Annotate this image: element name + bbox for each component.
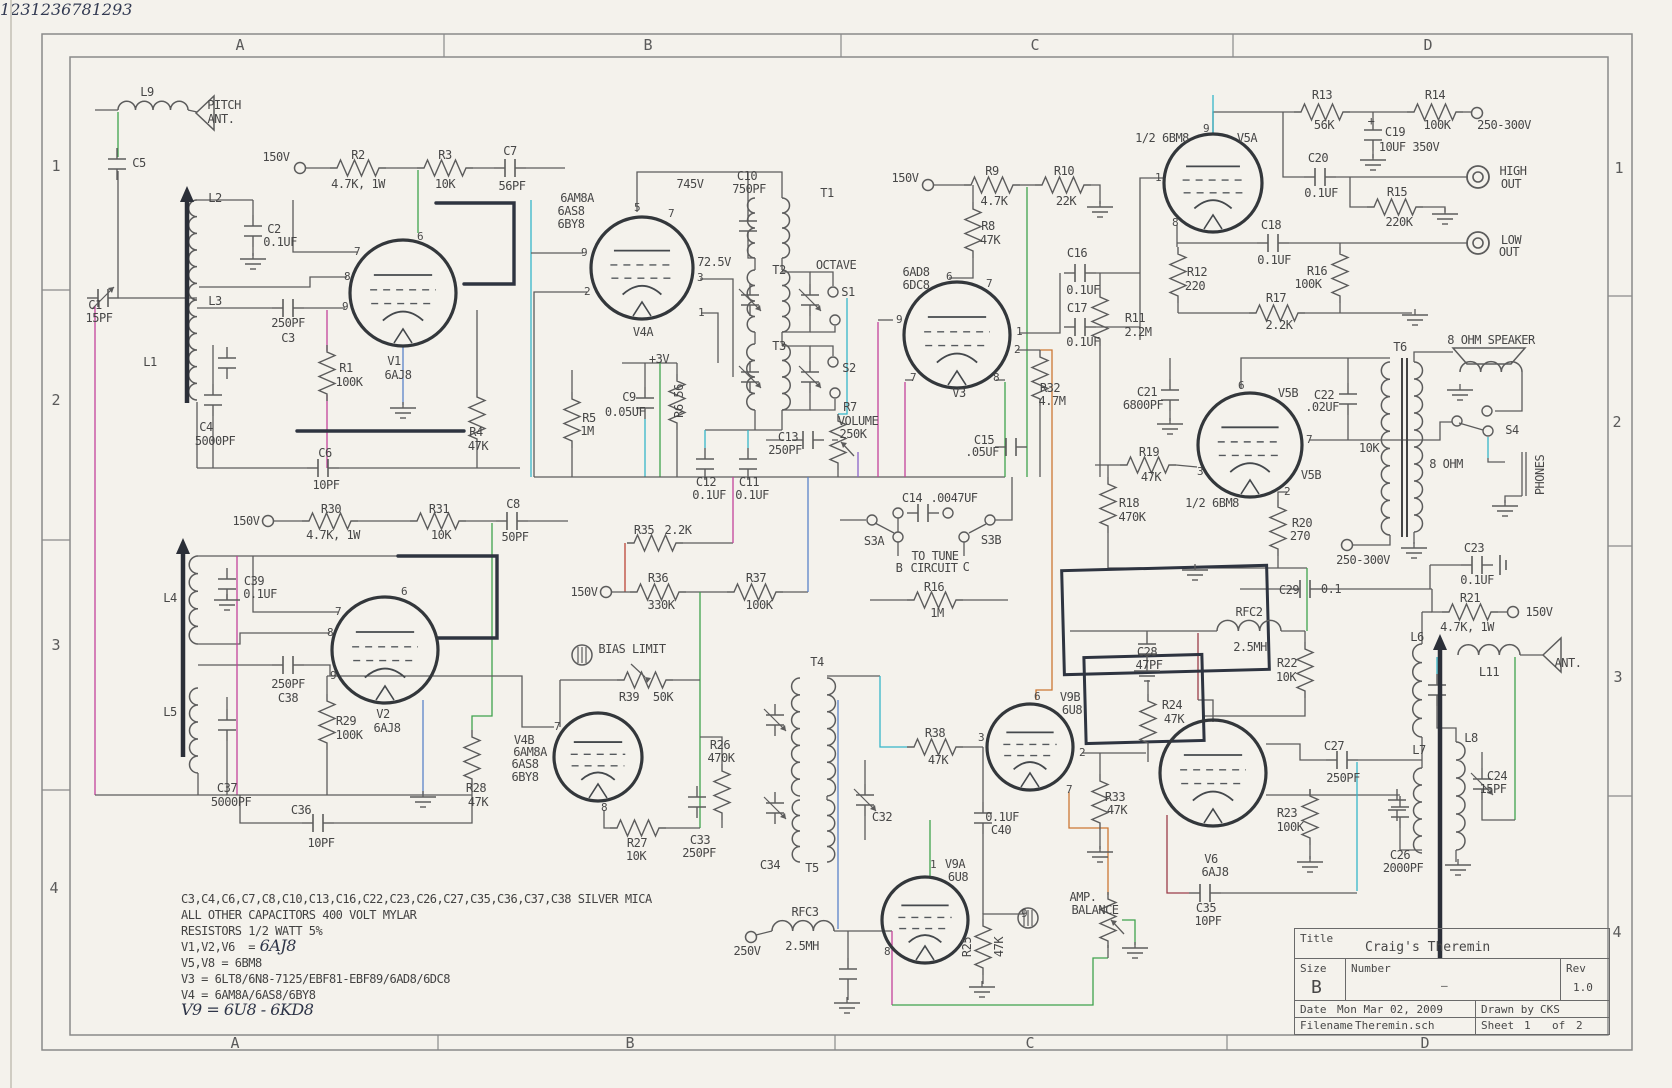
wire [1400, 828, 1422, 850]
inductor-symbol [190, 688, 199, 773]
resistor-symbol [319, 694, 335, 750]
component-label: 4.7K, 1W [331, 178, 385, 190]
component-label: 0.1UF [1257, 254, 1291, 266]
grid-ref-bottom-D: D [1420, 1034, 1429, 1052]
component-label: T4 [810, 656, 823, 668]
wire [1505, 496, 1522, 503]
component-label: R19 [1139, 446, 1159, 458]
wire [782, 272, 810, 284]
pot-wiper-arrow [631, 664, 645, 677]
size-label: Size [1300, 962, 1327, 975]
component-label: 220 [1185, 280, 1205, 292]
tube-pin-number: 2 [1284, 486, 1290, 498]
capacitor-symbol [244, 215, 262, 247]
component-label: C29 [1279, 584, 1299, 596]
component-label: R5 [582, 412, 595, 424]
capacitor-symbol [1461, 556, 1493, 574]
component-label: C7 [503, 145, 516, 157]
component-label: R30 [321, 503, 341, 515]
tube-cathode [1194, 200, 1231, 208]
component-label: 4.7M [1039, 395, 1066, 407]
component-label: 47K [980, 234, 1000, 246]
resistor-symbol [1367, 199, 1423, 215]
number-label: Number [1351, 962, 1391, 975]
wire [700, 279, 733, 377]
component-label: C23 [1464, 542, 1484, 554]
component-label: L11 [1479, 666, 1499, 678]
resistor-symbol [564, 392, 580, 448]
component-label: BALANCE [1071, 904, 1118, 916]
grid-ref-left-3: 3 [51, 636, 60, 654]
component-label-rotated: 47K [993, 937, 1005, 957]
component-label: 47K [468, 440, 488, 452]
tube-heater [394, 329, 412, 343]
component-label: CIRCUIT [910, 562, 957, 574]
tube-pin-number: 1 [1016, 326, 1022, 338]
tube-pin-number: 8 [884, 946, 890, 958]
component-label: 6AJ8 [1202, 866, 1229, 878]
component-label: C20 [1308, 152, 1328, 164]
wire [334, 795, 472, 823]
wire [1414, 422, 1452, 440]
component-label: 2.5MH [1233, 641, 1267, 653]
component-label: 47K [1141, 471, 1161, 483]
component-label: C8 [506, 498, 519, 510]
sheet-label: Sheet [1481, 1019, 1514, 1032]
size-cell: Size B [1295, 959, 1346, 1000]
component-label: 1/2 6BM8 [1185, 497, 1239, 509]
tube-cathode [1014, 762, 1047, 769]
component-label: 250PF [1326, 772, 1360, 784]
component-label: R38 [925, 727, 945, 739]
component-label: V9A [945, 858, 965, 870]
tube-pin-number: 8 [344, 271, 350, 283]
component-label: V1 [387, 355, 400, 367]
output-jack-center [1473, 172, 1483, 182]
capacitor-symbol [218, 347, 236, 379]
component-label: T6 [1393, 341, 1406, 353]
drawn-by-label: Drawn by [1481, 1003, 1534, 1016]
inductor-symbol [189, 556, 198, 644]
component-label: 47K [1164, 713, 1184, 725]
component-label: 250PF [682, 847, 716, 859]
tube-heater [1204, 809, 1222, 823]
component-label: R23 [1277, 807, 1297, 819]
component-label: V5B [1301, 469, 1321, 481]
terminal-circle [601, 587, 612, 598]
component-label: 6U8 [948, 871, 968, 883]
component-label: 10K [1359, 442, 1379, 454]
capacitor-symbol [496, 512, 528, 530]
sheet-total: 2 [1576, 1019, 1583, 1032]
capacitor-symbol [1304, 168, 1336, 186]
component-label: R18 [1119, 497, 1139, 509]
number-cell: Number – [1346, 959, 1561, 1000]
wire [1459, 423, 1483, 430]
tube-pin-number: 3 [978, 732, 984, 744]
capacitor-symbol [1161, 379, 1179, 411]
component-label: R15 [1387, 186, 1407, 198]
tube-pin-number: 1 [1155, 172, 1161, 184]
component-label: 4.7K, 1W [306, 529, 360, 541]
filename-label: Filename [1300, 1019, 1353, 1032]
inductor-symbol [1414, 768, 1423, 853]
tube-pin-number: 9 [896, 314, 902, 326]
component-label: R32 [1040, 382, 1060, 394]
tube-pin-number: 7 [554, 721, 560, 733]
component-label: R17 [1266, 292, 1286, 304]
wire [1488, 458, 1505, 462]
inductor-symbol [118, 101, 188, 110]
component-label: C [963, 561, 970, 573]
wire [782, 393, 810, 410]
component-label: 15PF [1480, 783, 1507, 795]
component-label: C28 [1137, 646, 1157, 658]
component-label: C16 [1067, 247, 1087, 259]
resistor-symbol [965, 202, 981, 258]
grid-ref-bottom-A: A [230, 1034, 239, 1052]
component-label: C27 [1324, 740, 1344, 752]
component-label: 50PF [502, 531, 529, 543]
grid-ref-bottom-C: C [1025, 1034, 1034, 1052]
wire [327, 676, 554, 727]
component-label: C12 [696, 476, 716, 488]
component-label: 250PF [271, 317, 305, 329]
component-label: 2.2K [1266, 319, 1293, 331]
component-label: 6AJ8 [385, 369, 412, 381]
component-label: R27 [627, 837, 647, 849]
component-label: 2.2M [1125, 326, 1152, 338]
resistor-symbol [1035, 177, 1091, 193]
component-label: 150V [1526, 606, 1553, 618]
wire [188, 110, 197, 112]
tube-pin-number: 7 [335, 606, 341, 618]
vacuum-tube-envelope [1164, 134, 1262, 232]
inductor-symbol [189, 200, 197, 400]
tube-pin-number: 7 [910, 372, 916, 384]
component-label: 1M [930, 607, 943, 619]
tube-pin-number: 7 [1066, 784, 1072, 796]
component-label: T1 [820, 187, 833, 199]
inductor-symbol [1413, 644, 1422, 737]
capacitor-symbol [764, 792, 786, 824]
wire [701, 313, 718, 363]
component-label: 0.05UF [605, 406, 645, 418]
capacitor-symbol [272, 299, 304, 317]
grid-ref-right-3: 3 [1613, 668, 1622, 686]
capacitor-symbol [1339, 383, 1357, 415]
component-label: R7 [843, 401, 856, 413]
component-label: OUT [1501, 178, 1521, 190]
component-label: R39 [619, 691, 639, 703]
tube-pin-number: 3 [697, 272, 703, 284]
component-label: .0047UF [930, 492, 977, 504]
component-label: R37 [746, 572, 766, 584]
output-jack [1467, 166, 1489, 188]
resistor-symbol [1302, 789, 1318, 845]
capacitor-symbol [1326, 751, 1358, 769]
component-label: 5000PF [195, 435, 235, 447]
wire [1069, 792, 1108, 895]
capacitor-symbol [688, 786, 706, 818]
grid-ref-top-D: D [1423, 36, 1432, 54]
tube-pin-number: 7 [1306, 434, 1312, 446]
component-label: 6AS8 [558, 205, 585, 217]
component-label: 2.5MH [785, 940, 819, 952]
wire [1482, 800, 1515, 820]
component-label: C26 [1390, 849, 1410, 861]
component-label: C34 [760, 859, 780, 871]
tube-cathode [937, 354, 977, 363]
wire [1241, 358, 1390, 389]
tube-heater [948, 371, 966, 385]
resistor-symbol [975, 919, 991, 975]
wire [472, 523, 492, 730]
wire [1167, 815, 1189, 893]
inductor-symbol [782, 270, 790, 332]
switch-contact [830, 388, 840, 398]
tube-pin-number: 2 [1014, 344, 1020, 356]
component-label: C38 [278, 692, 298, 704]
component-label: C35 [1196, 902, 1216, 914]
component-label: 750PF [732, 183, 766, 195]
tube-heater [589, 784, 607, 798]
size-value: B [1311, 977, 1322, 998]
filename-value: Theremin.sch [1355, 1019, 1434, 1032]
component-label: ANT. [1555, 657, 1582, 669]
capacitor-symbol [907, 504, 939, 522]
date-cell: Date Mon Mar 02, 2009 [1295, 1001, 1476, 1017]
sheet-cell: Sheet 1 of 2 [1476, 1018, 1609, 1034]
component-label: V5A [1237, 132, 1257, 144]
inductor-symbol [827, 800, 835, 862]
date-label: Date [1300, 1003, 1327, 1016]
grid-ref-right-1: 1 [1614, 159, 1623, 177]
component-label: S4 [1505, 424, 1518, 436]
component-label: R26 [710, 739, 730, 751]
inductor-symbol [1460, 362, 1522, 372]
wire [1176, 465, 1197, 467]
alignment-arrowhead [180, 186, 194, 202]
component-label: L8 [1464, 732, 1477, 744]
wire [1495, 372, 1522, 411]
capacitor-symbol [272, 656, 304, 674]
component-label: T5 [805, 862, 818, 874]
component-label: 150V [892, 172, 919, 184]
grid-ref-top-C: C [1030, 36, 1039, 54]
component-label: R1 [339, 362, 352, 374]
inductor-symbol [827, 678, 835, 796]
output-jack-center [1473, 238, 1483, 248]
component-label: 270 [1290, 530, 1310, 542]
component-label: 100K [1424, 119, 1451, 131]
component-label-rotated: PHONES [1534, 455, 1546, 495]
component-label: C36 [291, 804, 311, 816]
resistor-symbol [464, 730, 480, 786]
component-label: 50K [653, 691, 673, 703]
component-label: V9B [1060, 691, 1080, 703]
inductor-symbol [1458, 645, 1520, 655]
inductor-symbol [1381, 362, 1390, 535]
component-label: C19 [1385, 126, 1405, 138]
title-label: Title [1300, 932, 1333, 945]
switch-contact [1452, 416, 1462, 426]
component-label: C32 [872, 811, 892, 823]
component-label: L7 [1412, 744, 1425, 756]
component-label: 100K [746, 599, 773, 611]
component-label: V2 [376, 708, 389, 720]
capacitor-symbol [1064, 318, 1096, 336]
tube-heater [1021, 773, 1039, 787]
component-label: C11 [739, 476, 759, 488]
vacuum-tube-envelope [882, 877, 968, 963]
switch-contact [943, 508, 953, 518]
switch-contact [1482, 406, 1492, 416]
resistor-symbol [610, 820, 666, 836]
switch-contact [830, 315, 840, 325]
component-label: L4 [163, 592, 176, 604]
tube-pin-number: 6 [417, 231, 423, 243]
scanned-schematic-page: L9PITCHANT.C5150VR24.7K, 1WR310KC756PFL2… [0, 0, 1672, 1088]
capacitor-symbol [494, 159, 526, 177]
component-label: 470K [1119, 511, 1146, 523]
component-label: L2 [208, 192, 221, 204]
tube-pin-number: 6 [946, 271, 952, 283]
capacitor-symbol [218, 709, 236, 741]
inductor-symbol [782, 198, 790, 258]
component-label: 100K [1277, 821, 1304, 833]
component-label: 0.1UF [263, 236, 297, 248]
component-label: 150V [263, 151, 290, 163]
resistor-symbol [714, 764, 730, 820]
grid-ref-top-A: A [235, 36, 244, 54]
terminal-circle [1342, 540, 1353, 551]
inductor-symbol [747, 344, 755, 410]
rev-label: Rev [1566, 962, 1586, 975]
wire [1266, 744, 1326, 760]
tube-pin-number: 9 [1021, 908, 1027, 920]
component-label: R22 [1277, 657, 1297, 669]
resistor-symbol [1270, 500, 1286, 556]
tube-pin-number: 2 [1079, 747, 1085, 759]
component-label: 330K [648, 599, 675, 611]
date-value: Mon Mar 02, 2009 [1337, 1003, 1443, 1016]
switch-contact [828, 287, 838, 297]
tube-pin-number: 7 [986, 278, 992, 290]
tube-pin-number: 9 [342, 301, 348, 313]
component-label: 250PF [271, 678, 305, 690]
potentiometer-symbol [617, 672, 673, 688]
resistor-symbol [1442, 604, 1498, 620]
component-label: 0.1UF [985, 811, 1019, 823]
capacitor-symbol [204, 384, 222, 416]
component-label: C6 [318, 447, 331, 459]
component-label: C21 [1137, 386, 1157, 398]
wire [1283, 112, 1304, 177]
component-label: 6AJ8 [374, 722, 401, 734]
grid-ref-left-4: 4 [49, 879, 58, 897]
component-label: 6AM8A [560, 192, 594, 204]
wire [199, 277, 347, 287]
inductor-symbol [1456, 742, 1465, 850]
terminal-circle [263, 516, 274, 527]
tube-pin-number: 1 [930, 859, 936, 871]
component-label: S3B [981, 534, 1001, 546]
wire [1122, 920, 1135, 945]
component-label: 250V [734, 945, 761, 957]
component-label: 15PF [86, 312, 113, 324]
component-label: C18 [1261, 219, 1281, 231]
component-label: 10PF [1195, 915, 1222, 927]
tube-pin-number: 8 [601, 802, 607, 814]
component-label: C9 [622, 391, 635, 403]
wire [969, 524, 986, 533]
rev-cell: Rev 1.0 [1561, 959, 1609, 1000]
component-label: 6BY8 [558, 218, 585, 230]
tube-heater [376, 686, 394, 700]
potentiometer-symbol [1100, 892, 1116, 948]
tube-cathode [623, 286, 662, 295]
component-label: 5000PF [211, 796, 251, 808]
inductor-symbol [792, 800, 800, 862]
vacuum-tube-envelope [591, 217, 693, 319]
component-label: RFC2 [1236, 606, 1263, 618]
component-label: V3 [952, 387, 965, 399]
component-label: 0.1UF [692, 489, 726, 501]
component-label: T3 [772, 340, 785, 352]
inductor-symbol [782, 344, 790, 410]
component-label: 6AS8 [512, 758, 539, 770]
component-label: S1 [841, 286, 854, 298]
terminal-circle [1508, 607, 1519, 618]
switch-contact [985, 515, 995, 525]
note-handwritten-text: V9 = 6U8 - 6KD8 [181, 1000, 313, 1019]
component-label: 0.1UF [1460, 574, 1494, 586]
component-label: 1M [580, 425, 593, 437]
wire [1432, 589, 1442, 612]
wire [253, 556, 338, 612]
terminal-circle [923, 180, 934, 191]
capacitor-symbol [799, 284, 821, 316]
grid-ref-right-2: 2 [1612, 413, 1621, 431]
component-label-rotated: R25 [961, 937, 973, 957]
component-label: OCTAVE [816, 259, 856, 271]
tube-heater [633, 302, 651, 316]
component-label: R35 [634, 524, 654, 536]
resistor-symbol [417, 160, 473, 176]
component-label: R21 [1460, 592, 1480, 604]
tube-pin-number: 2 [584, 286, 590, 298]
tube-pin-number: 6 [1034, 691, 1040, 703]
component-label: 0.1UF [1066, 336, 1100, 348]
component-label: R31 [429, 503, 449, 515]
component-label: 10UF 350V [1379, 141, 1440, 153]
capacitor-symbol [1428, 674, 1446, 706]
vacuum-tube-envelope [554, 713, 642, 801]
component-label: C37 [217, 782, 237, 794]
alignment-arrowhead [176, 538, 190, 554]
component-label: V6 [1204, 853, 1217, 865]
component-label: 150V [571, 586, 598, 598]
component-label: 56K [1314, 119, 1334, 131]
grid-ref-right-4: 4 [1612, 923, 1621, 941]
component-label: 100K [336, 376, 363, 388]
component-label: 6AD8 [903, 266, 930, 278]
terminal-circle [746, 932, 757, 943]
tube-pin-number: 6 [401, 586, 407, 598]
wire [756, 931, 772, 935]
sheet-of-label: of [1552, 1019, 1565, 1032]
